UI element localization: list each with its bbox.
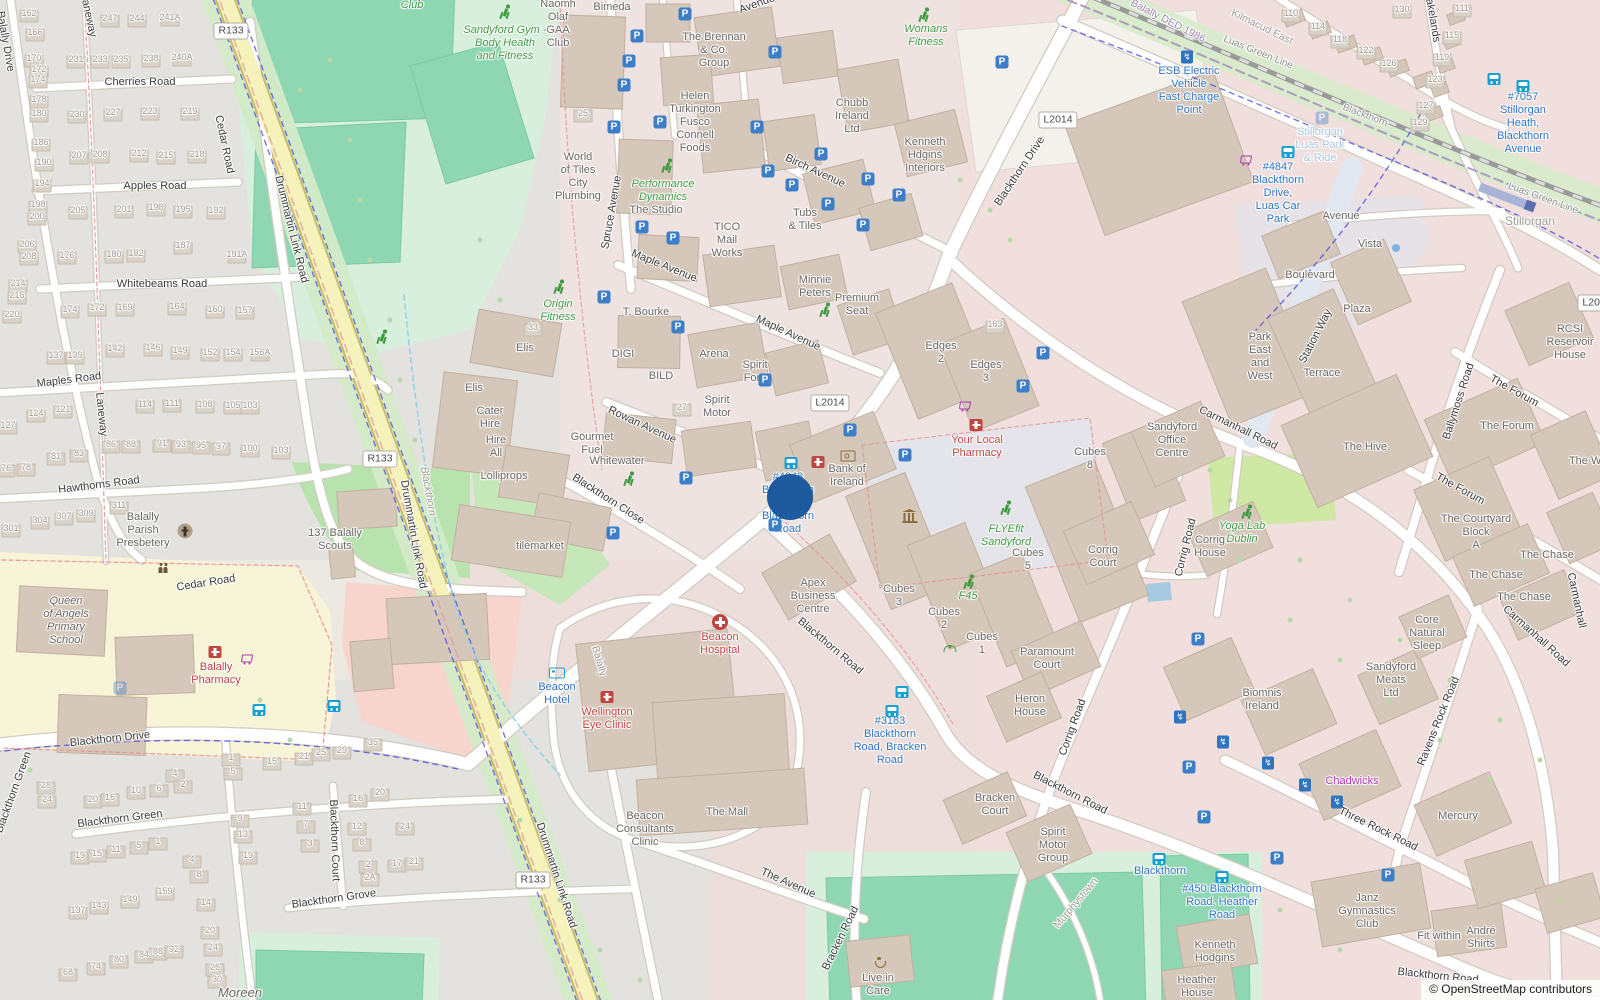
- map-canvas[interactable]: Cherries RoadApples RoadWhitebeams RoadM…: [0, 0, 1600, 1000]
- map-attribution: © OpenStreetMap contributors: [1421, 980, 1600, 1000]
- attribution-link[interactable]: © OpenStreetMap contributors: [1429, 982, 1592, 996]
- map-base-tiles: [0, 0, 1600, 1000]
